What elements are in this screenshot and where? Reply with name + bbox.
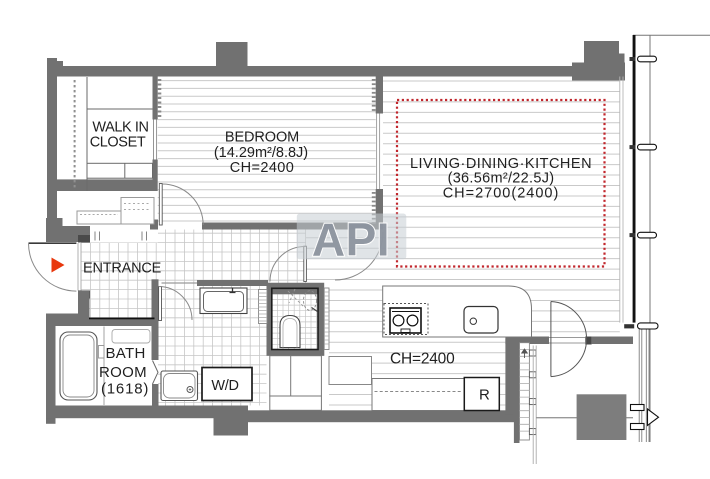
svg-text:(14.29m²/8.8J): (14.29m²/8.8J) (214, 145, 308, 161)
svg-text:BATH: BATH (106, 345, 146, 362)
svg-text:W/D: W/D (211, 378, 238, 394)
svg-text:R: R (479, 387, 490, 404)
svg-text:BEDROOM: BEDROOM (225, 130, 299, 146)
svg-text:(1618): (1618) (101, 381, 149, 398)
svg-text:CLOSET: CLOSET (90, 135, 146, 151)
svg-text:CH=2700(2400): CH=2700(2400) (443, 186, 560, 202)
svg-text:WALK IN: WALK IN (92, 120, 148, 136)
svg-text:ROOM: ROOM (99, 364, 147, 381)
svg-text:CH=2400: CH=2400 (390, 351, 455, 368)
svg-text:API: API (312, 214, 390, 266)
svg-text:ENTRANCE: ENTRANCE (83, 261, 162, 277)
svg-text:(36.56m²/22.5J): (36.56m²/22.5J) (448, 171, 555, 187)
svg-text:CH=2400: CH=2400 (230, 160, 294, 176)
